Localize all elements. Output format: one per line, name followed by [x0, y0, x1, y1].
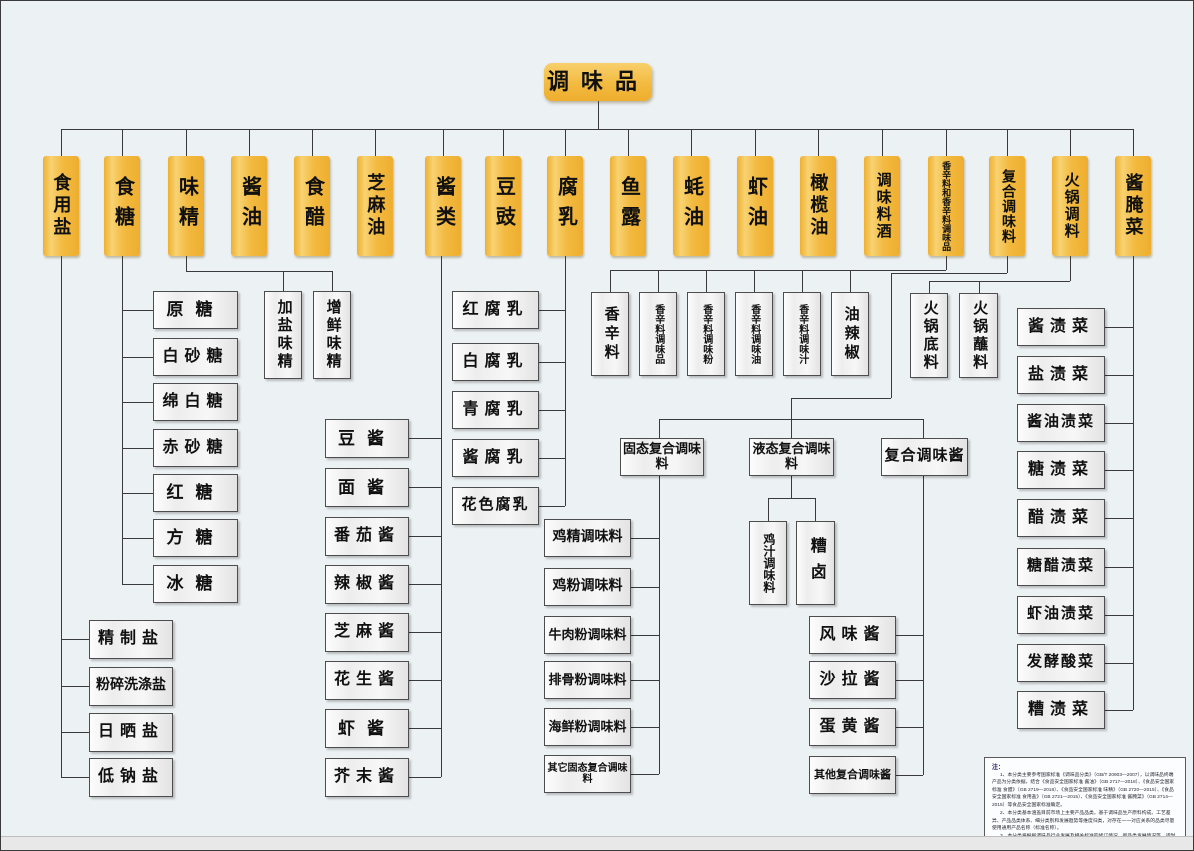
node-oyster-sauce: 蚝油: [673, 156, 709, 256]
node-olive-oil: 橄榄油: [800, 156, 836, 256]
node-hotpot-0: 火锅底料: [910, 293, 948, 378]
connector-line: [61, 777, 89, 778]
node-hotpot-seasoning: 火锅调料: [1052, 156, 1088, 256]
connector-line: [929, 281, 1070, 282]
connector-line: [755, 129, 756, 156]
connector-line: [628, 129, 629, 156]
diagram-page: 调味品 食用盐 食糖 味精 酱油 食醋 芝麻油 酱类 豆豉 腐乳 鱼露 蚝油 虾…: [0, 0, 1194, 851]
connector-line: [409, 632, 441, 633]
connector-line: [61, 129, 62, 156]
connector-line: [1105, 327, 1133, 328]
connector-line: [409, 536, 441, 537]
node-cooking-wine: 调味料酒: [864, 156, 900, 256]
connector-line: [1105, 518, 1133, 519]
node-sauce-0: 豆酱: [325, 419, 409, 458]
connector-line: [409, 584, 441, 585]
connector-line: [754, 270, 755, 292]
connector-line: [882, 129, 883, 156]
connector-line: [122, 357, 153, 358]
footer-strip: [1, 836, 1193, 850]
node-spice-5: 油辣椒: [831, 292, 869, 376]
connector-line: [1105, 567, 1133, 568]
connector-line: [539, 506, 565, 507]
node-liquid-1: 糟卤: [796, 521, 835, 605]
node-salt-0: 精制盐: [89, 620, 173, 659]
node-paste-3: 其他复合调味酱: [809, 756, 896, 794]
connector-line: [122, 129, 123, 156]
connector-line: [706, 270, 707, 292]
connector-line: [61, 129, 1133, 130]
connector-line: [896, 635, 923, 636]
node-spice-2: 香辛料调味粉: [687, 292, 725, 376]
connector-line: [409, 680, 441, 681]
node-liquid-0: 鸡汁调味料: [749, 521, 787, 605]
connector-line: [122, 256, 123, 584]
node-condiments-root: 调味品: [544, 63, 652, 101]
node-pickle-0: 酱渍菜: [1017, 308, 1105, 346]
node-sauce-2: 番茄酱: [325, 517, 409, 556]
node-fermented-tofu: 腐乳: [547, 156, 583, 256]
connector-line: [122, 584, 153, 585]
connector-line: [249, 129, 250, 156]
connector-line: [891, 273, 892, 398]
connector-line: [503, 129, 504, 156]
connector-line: [1133, 129, 1134, 156]
connector-line: [631, 727, 659, 728]
connector-line: [791, 476, 792, 498]
connector-line: [896, 680, 923, 681]
connector-line: [186, 256, 187, 271]
node-sauce-3: 辣椒酱: [325, 565, 409, 604]
connector-line: [979, 281, 980, 293]
connector-line: [1105, 375, 1133, 376]
node-pickle-1: 盐渍菜: [1017, 356, 1105, 394]
connector-line: [1007, 256, 1008, 273]
node-sugar: 食糖: [104, 156, 140, 256]
connector-line: [539, 362, 565, 363]
node-tofu-3: 酱腐乳: [452, 439, 539, 477]
connector-line: [1105, 710, 1133, 711]
connector-line: [1105, 615, 1133, 616]
connector-line: [409, 487, 441, 488]
connector-line: [802, 270, 803, 292]
connector-line: [791, 398, 891, 399]
node-solid-5: 其它固态复合调味料: [544, 755, 631, 793]
node-edible-salt: 食用盐: [43, 156, 79, 256]
connector-line: [610, 270, 946, 271]
connector-line: [122, 538, 153, 539]
note-paragraph-2: 2、本分类基本涵盖目前市场上主要产品品类，基于调味品生产原料构成、工艺差异、产品…: [992, 810, 1178, 832]
node-compound-paste: 复合调味酱: [881, 438, 968, 476]
node-tofu-4: 花色腐乳: [452, 487, 539, 525]
connector-line: [1007, 129, 1008, 156]
connector-line: [539, 410, 565, 411]
connector-line: [818, 129, 819, 156]
node-solid-0: 鸡精调味料: [544, 519, 631, 557]
node-paste-0: 风味酱: [809, 616, 896, 654]
node-sugar-0: 原糖: [153, 291, 238, 329]
node-spice-4: 香辛料调味汁: [783, 292, 821, 376]
node-tofu-0: 红腐乳: [452, 291, 539, 329]
node-solid-2: 牛肉粉调味料: [544, 616, 631, 654]
connector-line: [283, 271, 284, 291]
connector-line: [122, 493, 153, 494]
node-pickle-7: 发酵酸菜: [1017, 644, 1105, 682]
note-title: 注：: [992, 762, 1178, 771]
node-sauce-1: 面酱: [325, 468, 409, 507]
node-pickle-3: 糖渍菜: [1017, 451, 1105, 489]
connector-line: [631, 538, 659, 539]
connector-line: [768, 498, 815, 499]
connector-line: [1105, 423, 1133, 424]
node-salt-3: 低钠盐: [89, 758, 173, 797]
connector-line: [691, 129, 692, 156]
node-pickle-4: 醋渍菜: [1017, 499, 1105, 537]
node-compound-solid: 固态复合调味料: [620, 438, 704, 476]
connector-line: [891, 273, 1007, 274]
connector-line: [659, 419, 660, 438]
node-vinegar: 食醋: [294, 156, 330, 256]
note-box: 注： 1、本分类主要参考国家标准《调味品分类》（GB/T 20903—2007）…: [984, 757, 1186, 837]
connector-line: [186, 271, 332, 272]
node-salt-2: 日晒盐: [89, 713, 173, 752]
connector-line: [598, 101, 599, 129]
connector-line: [658, 270, 659, 292]
node-spice-1: 香辛料调味品: [639, 292, 677, 376]
node-msg-0: 加盐味精: [264, 291, 302, 379]
node-spice-0: 香辛料: [591, 292, 629, 376]
connector-line: [409, 777, 441, 778]
node-fish-sauce: 鱼露: [610, 156, 646, 256]
node-pickle-5: 糖醋渍菜: [1017, 548, 1105, 586]
connector-line: [768, 498, 769, 521]
connector-line: [375, 129, 376, 156]
note-paragraph-1: 1、本分类主要参考国家标准《调味品分类》（GB/T 20903—2007），以调…: [992, 772, 1178, 809]
node-sesame-oil: 芝麻油: [357, 156, 393, 256]
connector-line: [61, 732, 89, 733]
connector-line: [815, 498, 816, 521]
node-spice-3: 香辛料调味油: [735, 292, 773, 376]
node-hotpot-1: 火锅蘸料: [959, 293, 998, 378]
node-compound-liquid: 液态复合调味料: [749, 438, 834, 476]
connector-line: [610, 270, 611, 292]
node-solid-3: 排骨粉调味料: [544, 661, 631, 699]
node-solid-4: 海鲜粉调味料: [544, 708, 631, 746]
connector-line: [539, 310, 565, 311]
connector-line: [946, 256, 947, 270]
node-fermented-soybean: 豆豉: [485, 156, 521, 256]
node-tofu-1: 白腐乳: [452, 343, 539, 381]
node-sugar-1: 白砂糖: [153, 338, 238, 376]
connector-line: [1070, 129, 1071, 156]
connector-line: [443, 129, 444, 156]
connector-line: [409, 438, 441, 439]
node-paste-1: 沙拉酱: [809, 661, 896, 699]
node-sauce-6: 虾酱: [325, 709, 409, 748]
connector-line: [791, 398, 792, 419]
connector-line: [122, 448, 153, 449]
node-msg: 味精: [168, 156, 204, 256]
node-shrimp-oil: 虾油: [737, 156, 773, 256]
node-sauces: 酱类: [425, 156, 461, 256]
connector-line: [312, 129, 313, 156]
connector-line: [631, 587, 659, 588]
connector-line: [659, 476, 660, 774]
connector-line: [332, 271, 333, 291]
node-sugar-4: 红糖: [153, 474, 238, 512]
connector-line: [61, 639, 89, 640]
node-msg-1: 增鲜味精: [313, 291, 351, 379]
connector-line: [122, 402, 153, 403]
connector-line: [929, 281, 930, 293]
connector-line: [631, 680, 659, 681]
connector-line: [61, 256, 62, 777]
connector-line: [186, 129, 187, 156]
connector-line: [850, 270, 851, 292]
connector-line: [631, 635, 659, 636]
connector-line: [923, 419, 924, 438]
node-salt-1: 粉碎洗涤盐: [89, 667, 173, 706]
node-sauce-7: 芥末酱: [325, 758, 409, 797]
node-sauce-4: 芝麻酱: [325, 613, 409, 652]
node-pickle-8: 糟渍菜: [1017, 691, 1105, 729]
node-solid-1: 鸡粉调味料: [544, 568, 631, 606]
node-soy-sauce: 酱油: [231, 156, 267, 256]
node-sugar-3: 赤砂糖: [153, 429, 238, 467]
connector-line: [441, 256, 442, 777]
node-sauce-5: 花生酱: [325, 661, 409, 700]
connector-line: [565, 256, 566, 506]
node-sugar-5: 方糖: [153, 519, 238, 557]
connector-line: [1070, 256, 1071, 281]
connector-line: [631, 774, 659, 775]
node-pickle-6: 虾油渍菜: [1017, 596, 1105, 634]
node-spices: 香辛料和香辛料调味品: [928, 156, 964, 256]
node-tofu-2: 青腐乳: [452, 391, 539, 429]
connector-line: [896, 775, 923, 776]
connector-line: [122, 310, 153, 311]
node-sugar-2: 绵白糖: [153, 383, 238, 421]
connector-line: [946, 129, 947, 156]
node-sugar-6: 冰糖: [153, 565, 238, 603]
node-pickles: 酱腌菜: [1115, 156, 1151, 256]
node-paste-2: 蛋黄酱: [809, 708, 896, 746]
connector-line: [1105, 663, 1133, 664]
connector-line: [896, 727, 923, 728]
connector-line: [923, 476, 924, 775]
node-compound-seasoning: 复合调味料: [989, 156, 1025, 256]
connector-line: [791, 419, 792, 438]
connector-line: [539, 458, 565, 459]
connector-line: [61, 686, 89, 687]
connector-line: [409, 728, 441, 729]
connector-line: [1133, 256, 1134, 710]
connector-line: [1105, 470, 1133, 471]
connector-line: [565, 129, 566, 156]
node-pickle-2: 酱油渍菜: [1017, 404, 1105, 442]
